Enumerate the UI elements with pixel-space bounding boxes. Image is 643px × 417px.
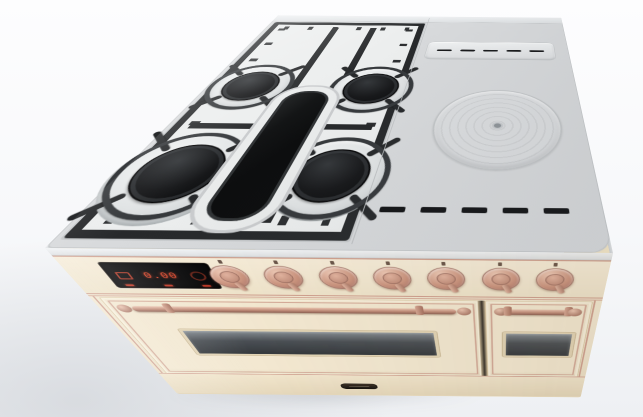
main-oven-door (99, 297, 483, 376)
scene: 0.00 (0, 0, 643, 417)
brand-badge (340, 384, 378, 390)
vent-slot (506, 50, 521, 52)
control-knob-knob-3 (312, 261, 362, 295)
simmer-plate (423, 90, 568, 171)
handle-mount (503, 306, 511, 315)
control-panel: 0.00 (52, 256, 611, 299)
knob-index-mark (330, 261, 335, 265)
main-oven-window (178, 329, 441, 357)
vent-slot (483, 50, 498, 52)
knob-index-mark (553, 263, 557, 267)
vent-slot (379, 207, 406, 213)
control-knob-knob-2 (255, 260, 308, 294)
vent-slot (529, 50, 544, 52)
range-front: 0.00 (45, 248, 613, 397)
side-oven-handle (497, 307, 581, 317)
knob-index-mark (273, 260, 279, 264)
vent-slot (460, 50, 475, 52)
gas-burner-zone (59, 22, 426, 243)
handle-finial (457, 307, 472, 315)
knob-hub (491, 274, 510, 285)
grate-nubs (283, 27, 410, 31)
side-oven-window (503, 332, 576, 358)
knob-index-mark (217, 260, 223, 264)
knob-index-mark (385, 261, 390, 265)
product-render: 0.00 (0, 0, 643, 417)
simmer-plate-center (494, 123, 501, 128)
back-vent-strip (423, 42, 556, 61)
knob-index-mark (441, 262, 445, 266)
side-oven-door (485, 301, 593, 378)
vent-slot (461, 207, 487, 213)
control-knob-knob-7 (534, 263, 576, 297)
range-cooker: 0.00 (45, 248, 613, 253)
control-knob-knob-5 (424, 262, 466, 296)
vent-slot (437, 49, 452, 51)
vent-slot (543, 208, 569, 214)
cooktop-surface (45, 15, 613, 253)
handle-finial (567, 308, 582, 316)
handle-rod (130, 306, 456, 314)
main-oven-handle (116, 304, 469, 317)
control-knob-knob-4 (368, 261, 414, 295)
handle-rod (504, 309, 573, 315)
control-knob-knob-6 (480, 262, 519, 296)
vent-slot (420, 207, 447, 213)
vent-slot (503, 208, 529, 214)
kickplate (158, 373, 585, 397)
knob-index-mark (498, 262, 502, 266)
control-knob-knob-1 (199, 260, 256, 294)
handle-mount (414, 306, 424, 315)
